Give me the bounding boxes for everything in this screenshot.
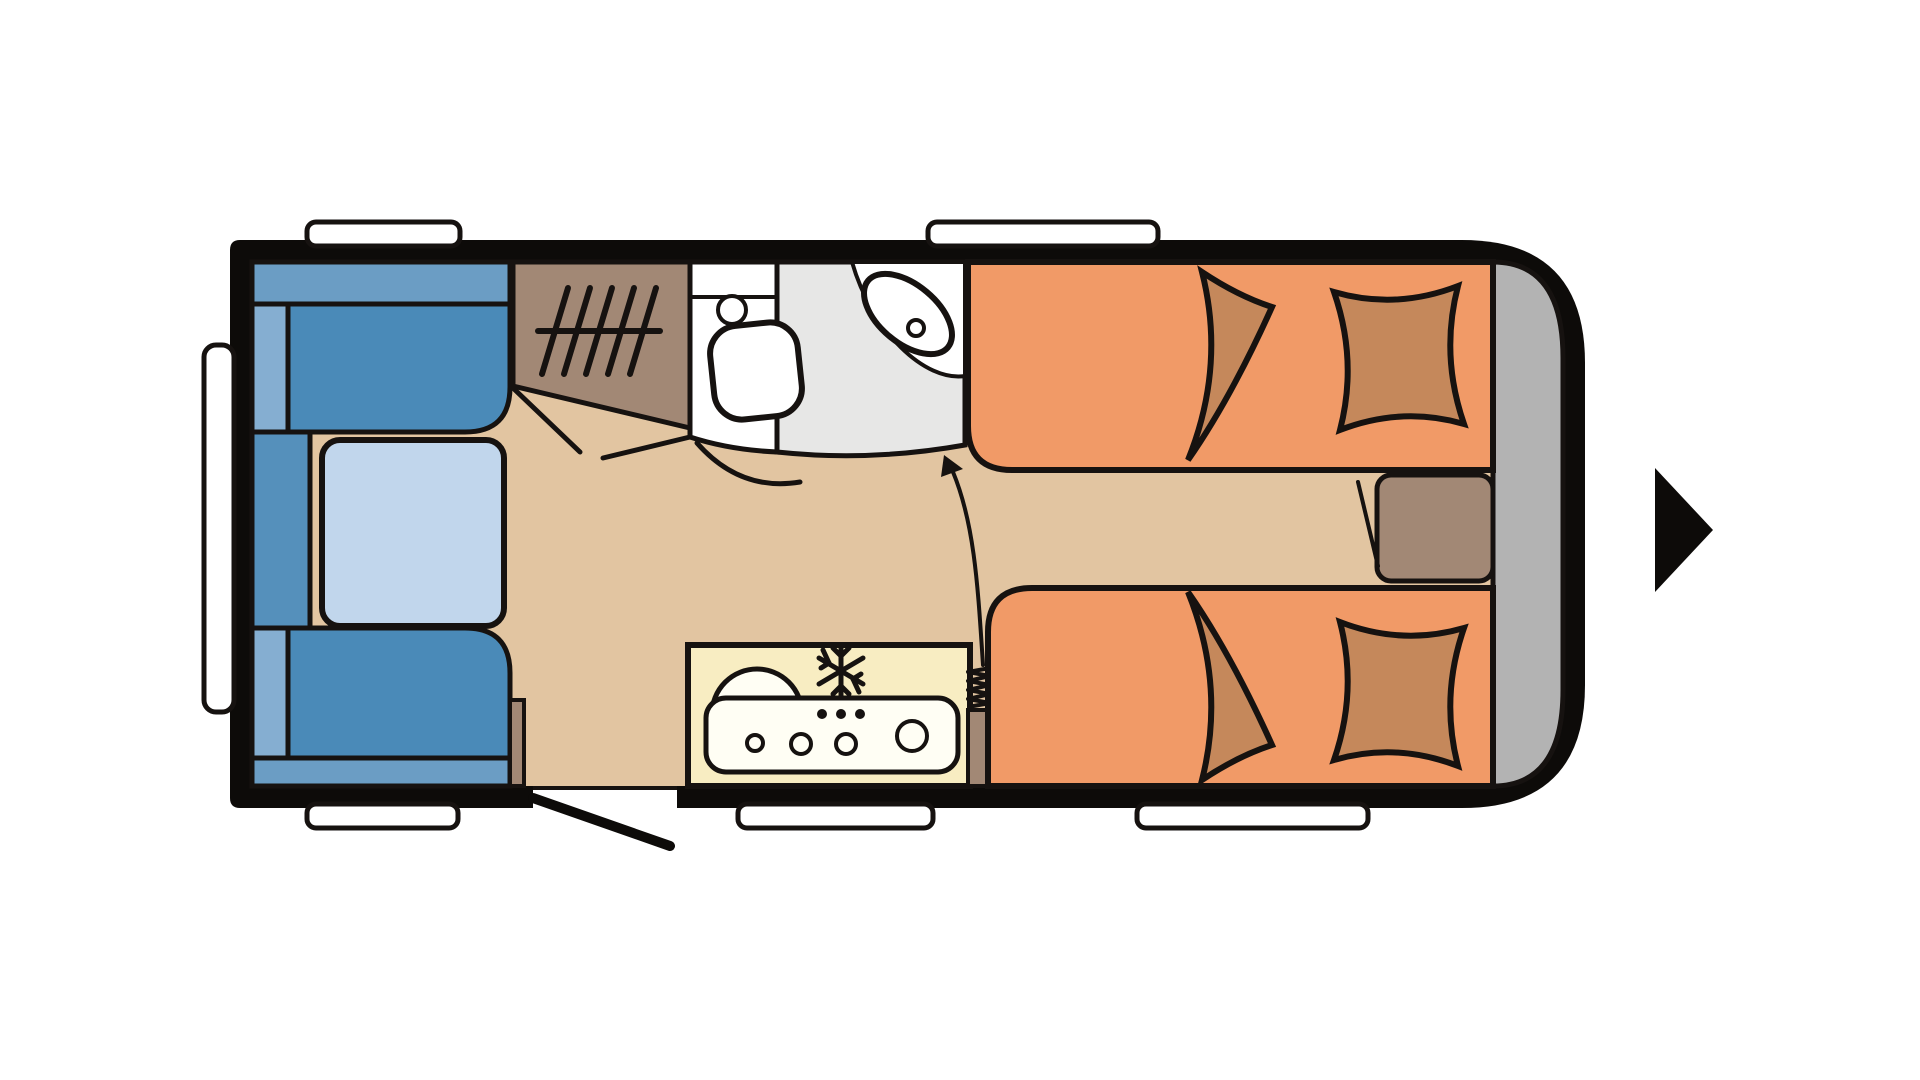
- sink-drain: [747, 735, 763, 751]
- basin-drain: [908, 320, 924, 336]
- cushion-top-bed: [1334, 286, 1464, 430]
- window-bottom-left: [307, 804, 458, 828]
- window-top-right: [928, 222, 1158, 246]
- dinette-seat-bottom: [288, 628, 510, 758]
- dinette-side-strip-mid: [252, 432, 310, 628]
- hob-burner-small-2: [836, 734, 856, 754]
- window-top-left: [307, 222, 460, 246]
- floor-plan-svg: [0, 0, 1920, 1080]
- hob-knobs: [817, 709, 865, 719]
- window-bottom-center: [738, 804, 933, 828]
- hob-burner-large: [897, 721, 927, 751]
- window-front: [204, 345, 234, 712]
- dinette-backrest-bottom: [252, 758, 510, 786]
- hob-burner-small-1: [791, 734, 811, 754]
- door-side-cabinet: [510, 700, 524, 786]
- window-bottom-right: [1137, 804, 1368, 828]
- dinette-backrest-top: [252, 262, 510, 304]
- dinette-seat-top: [288, 304, 510, 432]
- dinette-table: [322, 440, 504, 626]
- dinette-side-strip-bottom: [252, 628, 288, 758]
- rear-storage: [1493, 262, 1563, 786]
- dinette-side-strip-top: [252, 304, 288, 432]
- cushion-bottom-bed: [1334, 622, 1464, 766]
- washroom-small-basin: [718, 296, 746, 324]
- direction-arrow-icon: [1655, 468, 1713, 592]
- toilet-icon: [707, 320, 804, 423]
- bedside-chest: [1377, 475, 1493, 581]
- floor-plan: [0, 0, 1920, 1080]
